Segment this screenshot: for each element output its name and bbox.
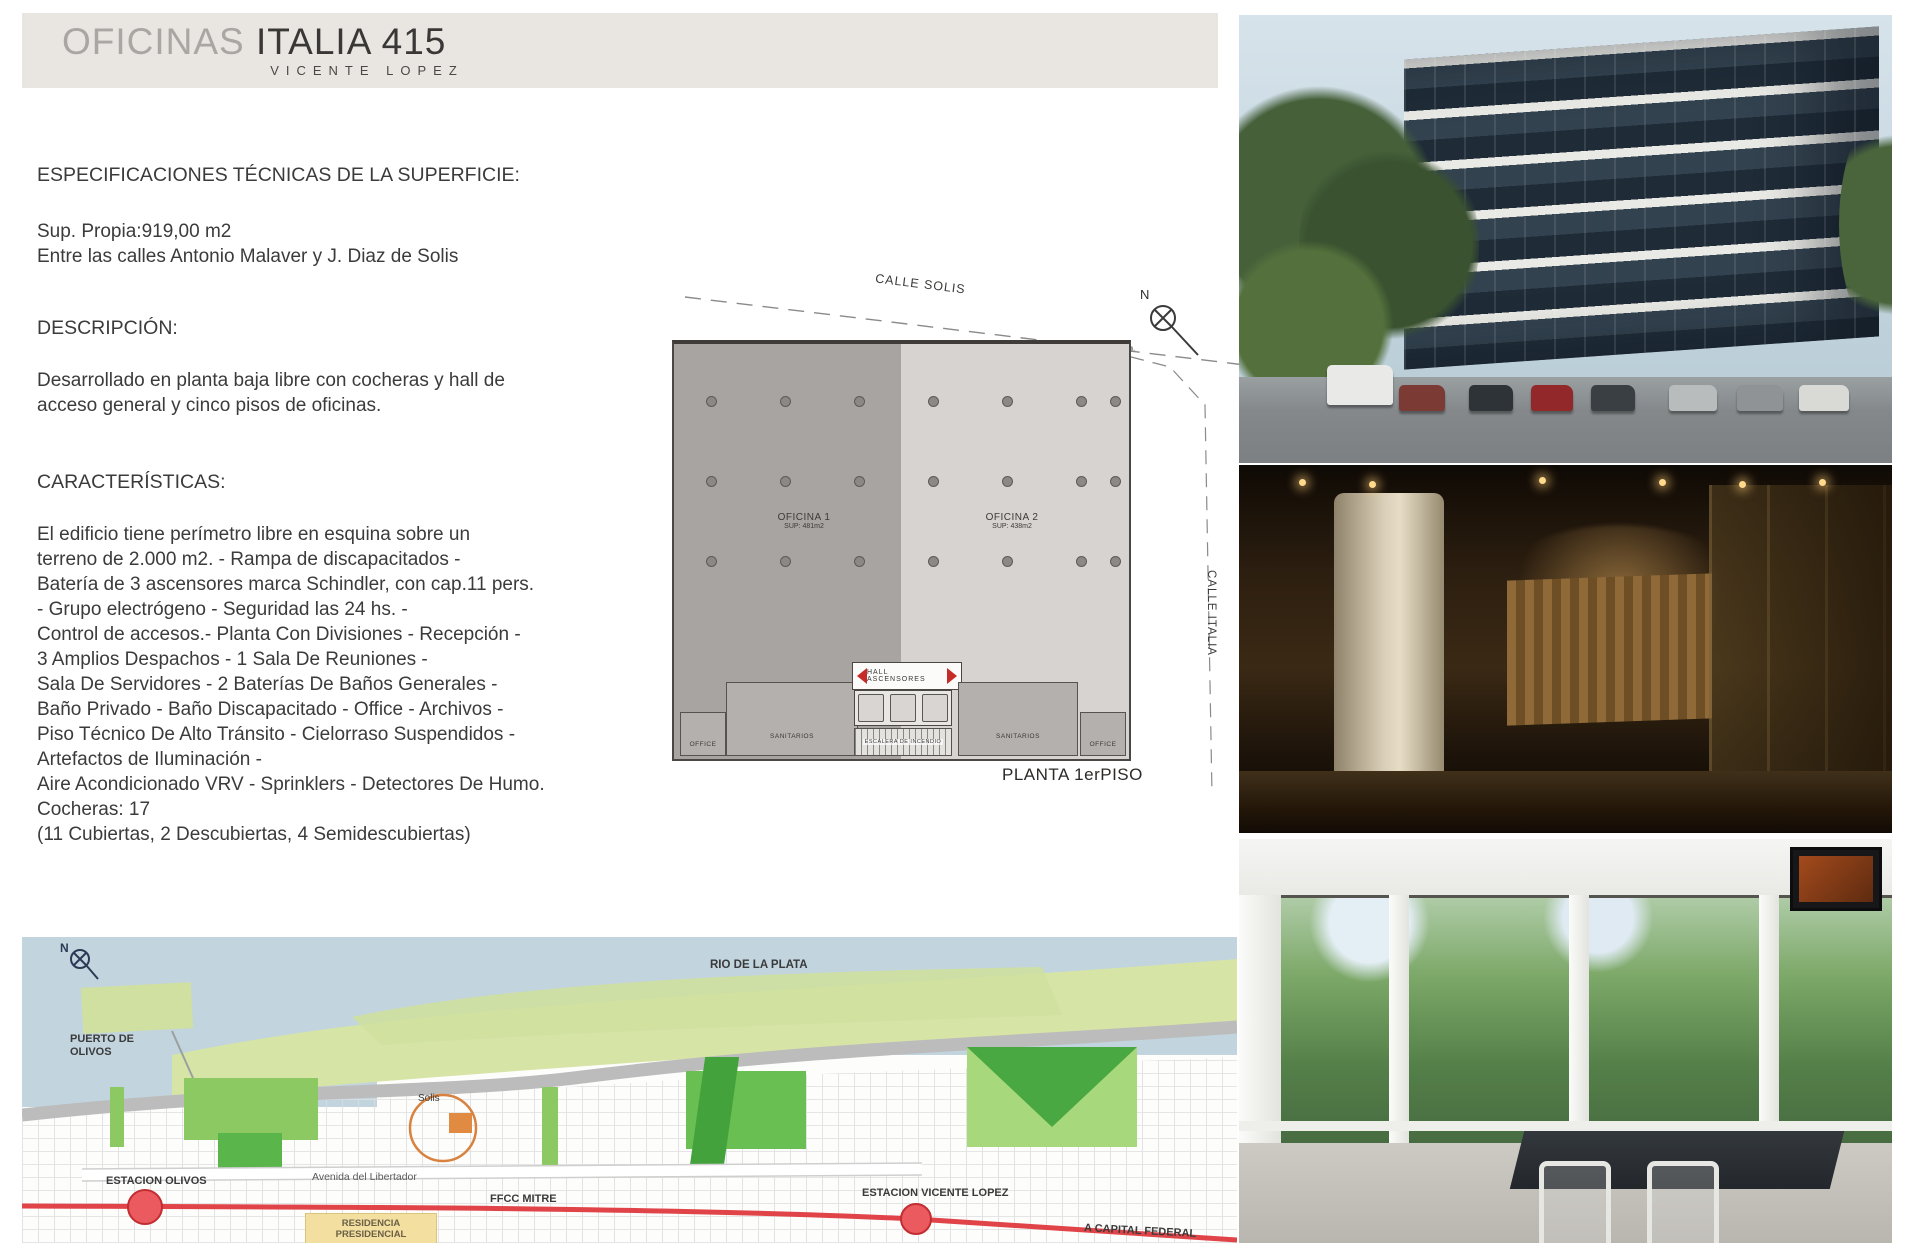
features-line: (11 Cubiertas, 2 Descubiertas, 4 Semides… [37, 822, 637, 847]
features-line: 3 Amplios Despachos - 1 Sala De Reunione… [37, 647, 637, 672]
wood-partition [1507, 573, 1712, 725]
site-building-block [449, 1113, 472, 1133]
building-outline: OFICINA 1 SUP: 481m2 OFICINA 2 SUP: 438m… [672, 340, 1131, 761]
features-title: CARACTERÍSTICAS: [37, 470, 637, 495]
car [1469, 385, 1513, 411]
brand-subtitle: VICENTE LOPEZ [252, 64, 482, 77]
features-line: Control de accesos.- Planta Con Division… [37, 622, 637, 647]
car [1737, 385, 1783, 411]
column-dot [1002, 556, 1013, 567]
window-column [1389, 895, 1409, 1145]
elevator-cab [858, 694, 884, 722]
station-olivos-marker [128, 1190, 162, 1224]
window-column [1239, 895, 1281, 1145]
column-dot [706, 476, 717, 487]
ceiling-light-icon [1369, 481, 1376, 488]
location-map: N RIO DE LA PLATA PUERTO DE OLIVOS Solis… [22, 937, 1237, 1243]
office-room-left: OFFICE [680, 712, 726, 756]
description-title: DESCRIPCIÓN: [37, 316, 637, 341]
car [1669, 385, 1717, 411]
glass-mullions [1404, 26, 1879, 369]
column-dot [780, 396, 791, 407]
window-column [1759, 895, 1779, 1145]
floorplan: CALLE SOLIS N L.M. CALLE ITALIA OFICINA … [660, 255, 1250, 800]
stairs-label: ESCALERA DE INCENDIO [863, 739, 944, 745]
features-line: Piso Técnico De Alto Tránsito - Cielorra… [37, 722, 637, 747]
car [1399, 385, 1445, 411]
avenue-road [82, 1169, 922, 1175]
description-line: acceso general y cinco pisos de oficinas… [37, 393, 637, 418]
map-north-compass-icon [71, 950, 98, 979]
column-dot [854, 396, 865, 407]
window-sill [1239, 1121, 1892, 1131]
elevator-cab [922, 694, 948, 722]
column-dot [1002, 476, 1013, 487]
features-line: - Grupo electrógeno - Seguridad las 24 h… [37, 597, 637, 622]
sanitarios-left-label: SANITARIOS [727, 733, 857, 740]
column-dot [1110, 396, 1121, 407]
residence-label-line: PRESIDENCIAL [306, 1229, 436, 1240]
ceiling-light-icon [1819, 479, 1826, 486]
column-dot [928, 396, 939, 407]
photo-building-exterior [1239, 15, 1892, 463]
header-band: OFICINAS ITALIA 415 VICENTE LOPEZ [22, 13, 1218, 88]
specs-title: ESPECIFICACIONES TÉCNICAS DE LA SUPERFIC… [37, 163, 637, 188]
column-dot [854, 556, 865, 567]
brand-title: OFICINAS ITALIA 415 [62, 23, 482, 60]
column-dot [780, 476, 791, 487]
chair [1539, 1161, 1611, 1243]
column-dot [706, 556, 717, 567]
port-label: PUERTO DE OLIVOS [70, 1033, 134, 1059]
specs-line: Sup. Propia:919,00 m2 [37, 219, 637, 244]
window-view-trees [1239, 898, 1892, 1143]
features-line: Cocheras: 17 [37, 797, 637, 822]
column-dot [1076, 476, 1087, 487]
port-label-line: OLIVOS [70, 1046, 134, 1059]
features-line: Baño Privado - Baño Discapacitado - Offi… [37, 697, 637, 722]
window-column [1569, 895, 1589, 1145]
sanitarios-right-label: SANITARIOS [959, 733, 1077, 740]
lobby-floor [1239, 771, 1892, 833]
glass-building [1404, 26, 1879, 369]
features-line: El edificio tiene perímetro libre en esq… [37, 522, 637, 547]
specs-block: Sup. Propia:919,00 m2 Entre las calles A… [37, 219, 637, 269]
features-block: El edificio tiene perímetro libre en esq… [37, 522, 637, 847]
fire-stairs: ESCALERA DE INCENDIO [854, 728, 952, 756]
ceiling-light-icon [1539, 477, 1546, 484]
residence-block: RESIDENCIA PRESIDENCIAL [305, 1213, 437, 1243]
ceiling-light-icon [1299, 479, 1306, 486]
calle-italia-label: CALLE ITALIA [1205, 570, 1217, 656]
port-label-line: PUERTO DE [70, 1033, 134, 1046]
plan-caption: PLANTA 1erPISO [1002, 765, 1143, 785]
station-vicente-lopez-marker [901, 1204, 931, 1234]
park [542, 1087, 558, 1167]
hall-label: HALL ASCENSORES [867, 669, 947, 683]
site-label: Solis [418, 1093, 440, 1104]
office-room-right: OFFICE [1080, 712, 1126, 756]
north-label: N [1140, 287, 1149, 302]
brand-title-dark: ITALIA 415 [256, 21, 446, 62]
photo-office-interior [1239, 839, 1892, 1243]
wall-screen [1790, 847, 1882, 911]
sanitarios-right: SANITARIOS [958, 682, 1078, 756]
ceiling-light-icon [1739, 481, 1746, 488]
column-dot [928, 556, 939, 567]
elevators [854, 690, 952, 726]
car [1591, 385, 1635, 411]
brand-title-light: OFICINAS [62, 21, 245, 62]
features-line: Artefactos de Iluminación - [37, 747, 637, 772]
office1-name: OFICINA 1 [744, 512, 864, 523]
office2-sup: SUP: 438m2 [952, 523, 1072, 530]
chair [1647, 1161, 1719, 1243]
park [218, 1133, 282, 1169]
description-line: Desarrollado en planta baja libre con co… [37, 368, 637, 393]
column-dot [928, 476, 939, 487]
map-shapes [22, 937, 1237, 1243]
office1-label: OFICINA 1 SUP: 481m2 [744, 512, 864, 530]
features-line: Batería de 3 ascensores marca Schindler,… [37, 572, 637, 597]
hall-ascensores: HALL ASCENSORES [852, 662, 962, 690]
column-dot [854, 476, 865, 487]
column-dot [1076, 556, 1087, 567]
column-dot [1076, 396, 1087, 407]
column-dot [706, 396, 717, 407]
column-dot [1110, 476, 1121, 487]
wall-screen-content [1799, 856, 1873, 902]
avenue-label: Avenida del Libertador [312, 1171, 417, 1183]
office-room-right-label: OFFICE [1081, 741, 1125, 748]
residence-label-line: RESIDENCIA [306, 1218, 436, 1229]
elevator-cab [890, 694, 916, 722]
features-line: Aire Acondicionado VRV - Sprinklers - De… [37, 772, 637, 797]
ceiling-light-icon [1659, 479, 1666, 486]
north-compass-icon [1151, 306, 1198, 355]
features-line: terreno de 2.000 m2. - Rampa de discapac… [37, 547, 637, 572]
park [184, 1078, 318, 1140]
hall-arrow-left-icon [857, 668, 867, 684]
map-north-label: N [60, 941, 69, 955]
office2-label: OFICINA 2 SUP: 438m2 [952, 512, 1072, 530]
station-vicente-lopez-label: ESTACION VICENTE LOPEZ [862, 1187, 1008, 1199]
hall-arrow-right-icon [947, 668, 957, 684]
station-olivos-label: ESTACION OLIVOS [106, 1175, 207, 1187]
sanitarios-left: SANITARIOS [726, 682, 858, 756]
features-line: Sala De Servidores - 2 Baterías De Baños… [37, 672, 637, 697]
office2-name: OFICINA 2 [952, 512, 1072, 523]
brand-logo: OFICINAS ITALIA 415 VICENTE LOPEZ [62, 23, 482, 77]
office1-sup: SUP: 481m2 [744, 523, 864, 530]
park [110, 1087, 124, 1147]
column-dot [1002, 396, 1013, 407]
specs-line: Entre las calles Antonio Malaver y J. Di… [37, 244, 637, 269]
column-dot [780, 556, 791, 567]
rail-label: FFCC MITRE [490, 1193, 557, 1205]
river-label: RIO DE LA PLATA [710, 959, 808, 971]
truck [1327, 365, 1393, 405]
glass-wall [1709, 485, 1892, 795]
harbor-pier [81, 982, 193, 1034]
description-block: Desarrollado en planta baja libre con co… [37, 368, 637, 418]
office-room-left-label: OFFICE [681, 741, 725, 748]
photo-lobby-interior [1239, 465, 1892, 833]
car [1531, 385, 1573, 411]
car [1799, 385, 1849, 411]
column-dot [1110, 556, 1121, 567]
lobby-column [1334, 493, 1444, 798]
rail-line [22, 1206, 1237, 1240]
